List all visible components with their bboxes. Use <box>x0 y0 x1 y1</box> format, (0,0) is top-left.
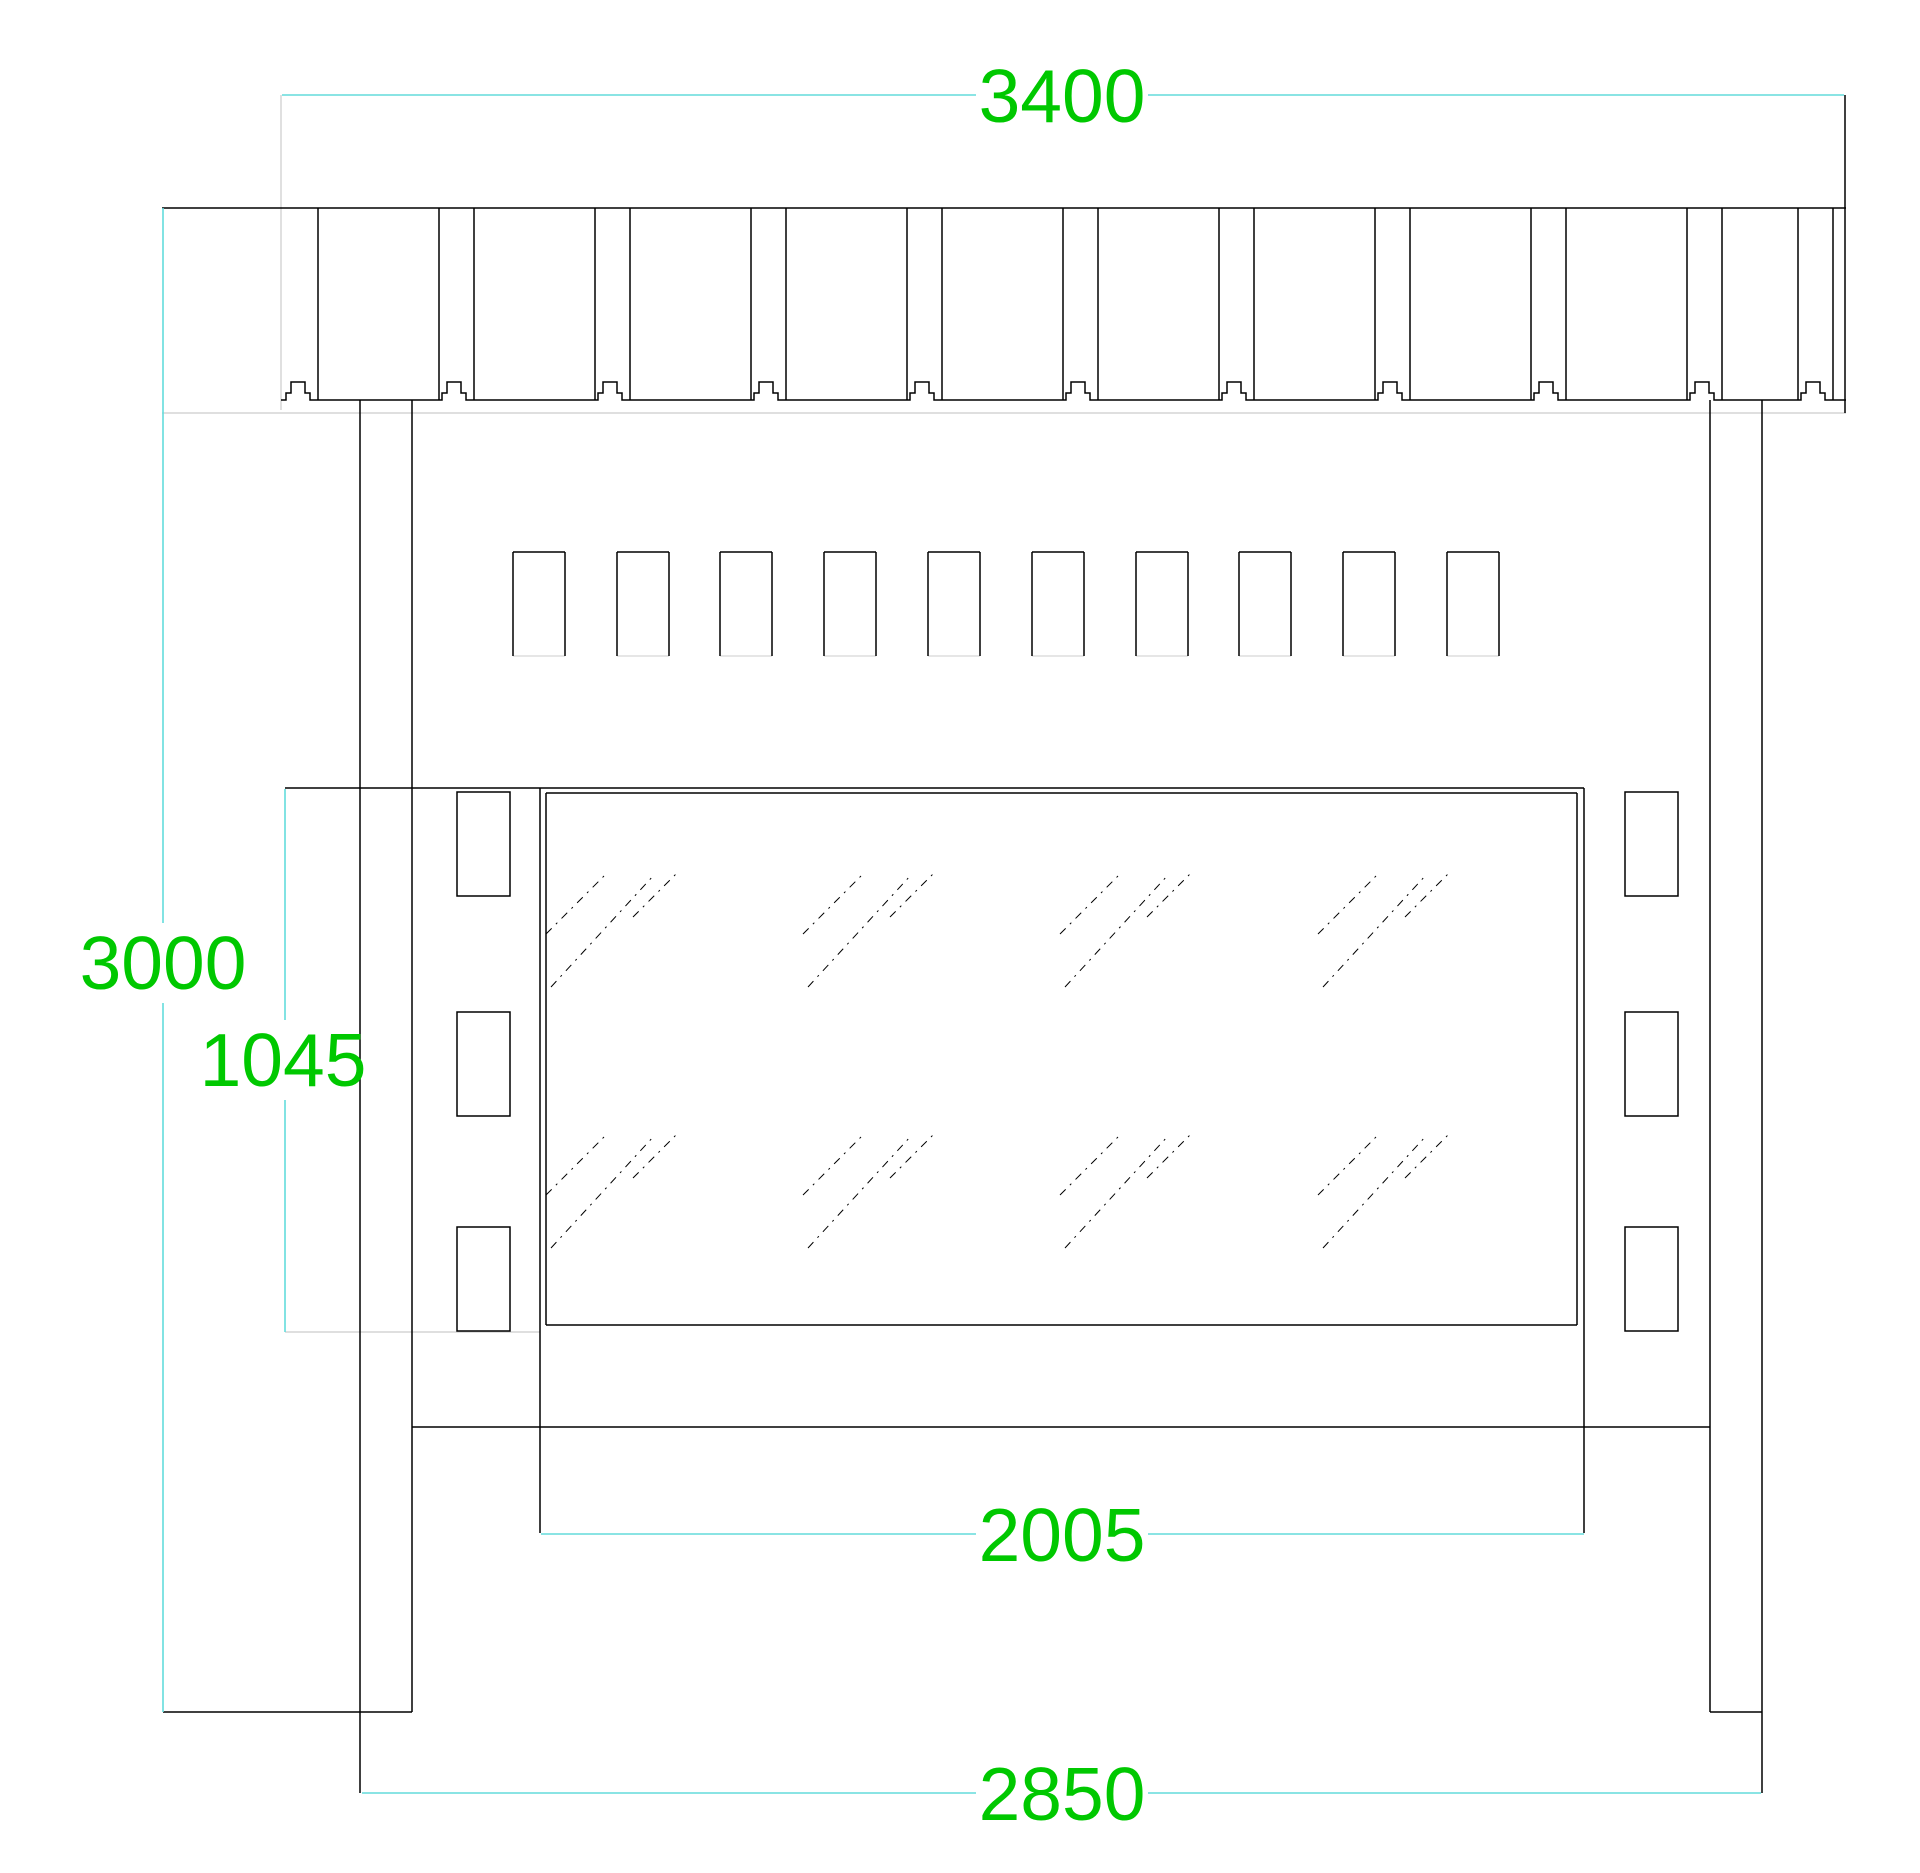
glass-hatch-stroke <box>1147 1134 1191 1178</box>
glass-hatch-stroke <box>1405 1134 1449 1178</box>
mounting-tab <box>457 792 510 896</box>
glass-hatch-stroke <box>1405 873 1449 917</box>
mounting-tab <box>457 1227 510 1331</box>
dim-label-3000: 3000 <box>80 921 247 1005</box>
glass-hatch-stroke <box>803 872 865 934</box>
mounting-tab <box>1625 792 1678 896</box>
dim-label-2005: 2005 <box>979 1493 1146 1577</box>
glass-hatch-stroke <box>1323 1136 1426 1248</box>
glass-hatch-stroke <box>1065 875 1168 987</box>
glass-hatch-stroke <box>551 875 654 987</box>
glass-hatch-stroke <box>1318 872 1380 934</box>
glass-hatch-stroke <box>1060 872 1122 934</box>
mounting-tab <box>1625 1227 1678 1331</box>
glass-hatch-stroke <box>546 1133 608 1195</box>
mounting-tab <box>1625 1012 1678 1116</box>
cad-elevation-drawing: 3400 3000 1045 2005 2850 <box>0 0 1920 1873</box>
glass-hatch-stroke <box>546 872 608 934</box>
dim-label-3400: 3400 <box>979 54 1146 138</box>
glass-hatch-stroke <box>1060 1133 1122 1195</box>
glass-hatch-stroke <box>633 873 677 917</box>
dim-label-1045: 1045 <box>200 1018 367 1102</box>
glass-hatch-stroke <box>551 1136 654 1248</box>
glass-hatch-stroke <box>1147 873 1191 917</box>
glass-hatch-stroke <box>1323 875 1426 987</box>
glass-hatch-stroke <box>1318 1133 1380 1195</box>
glass-hatch-stroke <box>633 1134 677 1178</box>
glass-hatch-stroke <box>890 1134 934 1178</box>
glass-hatch-layer <box>546 872 1449 1248</box>
glass-hatch-stroke <box>890 873 934 917</box>
glass-hatch-stroke <box>1065 1136 1168 1248</box>
dimension-text-layer: 3400 3000 1045 2005 2850 <box>80 54 1146 1836</box>
mounting-tab <box>457 1012 510 1116</box>
glass-hatch-stroke <box>803 1133 865 1195</box>
glass-hatch-stroke <box>808 1136 911 1248</box>
glass-hatch-stroke <box>808 875 911 987</box>
dim-label-2850: 2850 <box>979 1752 1146 1836</box>
drawing-stage: 3400 3000 1045 2005 2850 <box>0 0 1920 1873</box>
faint-line-layer <box>162 95 1846 1332</box>
